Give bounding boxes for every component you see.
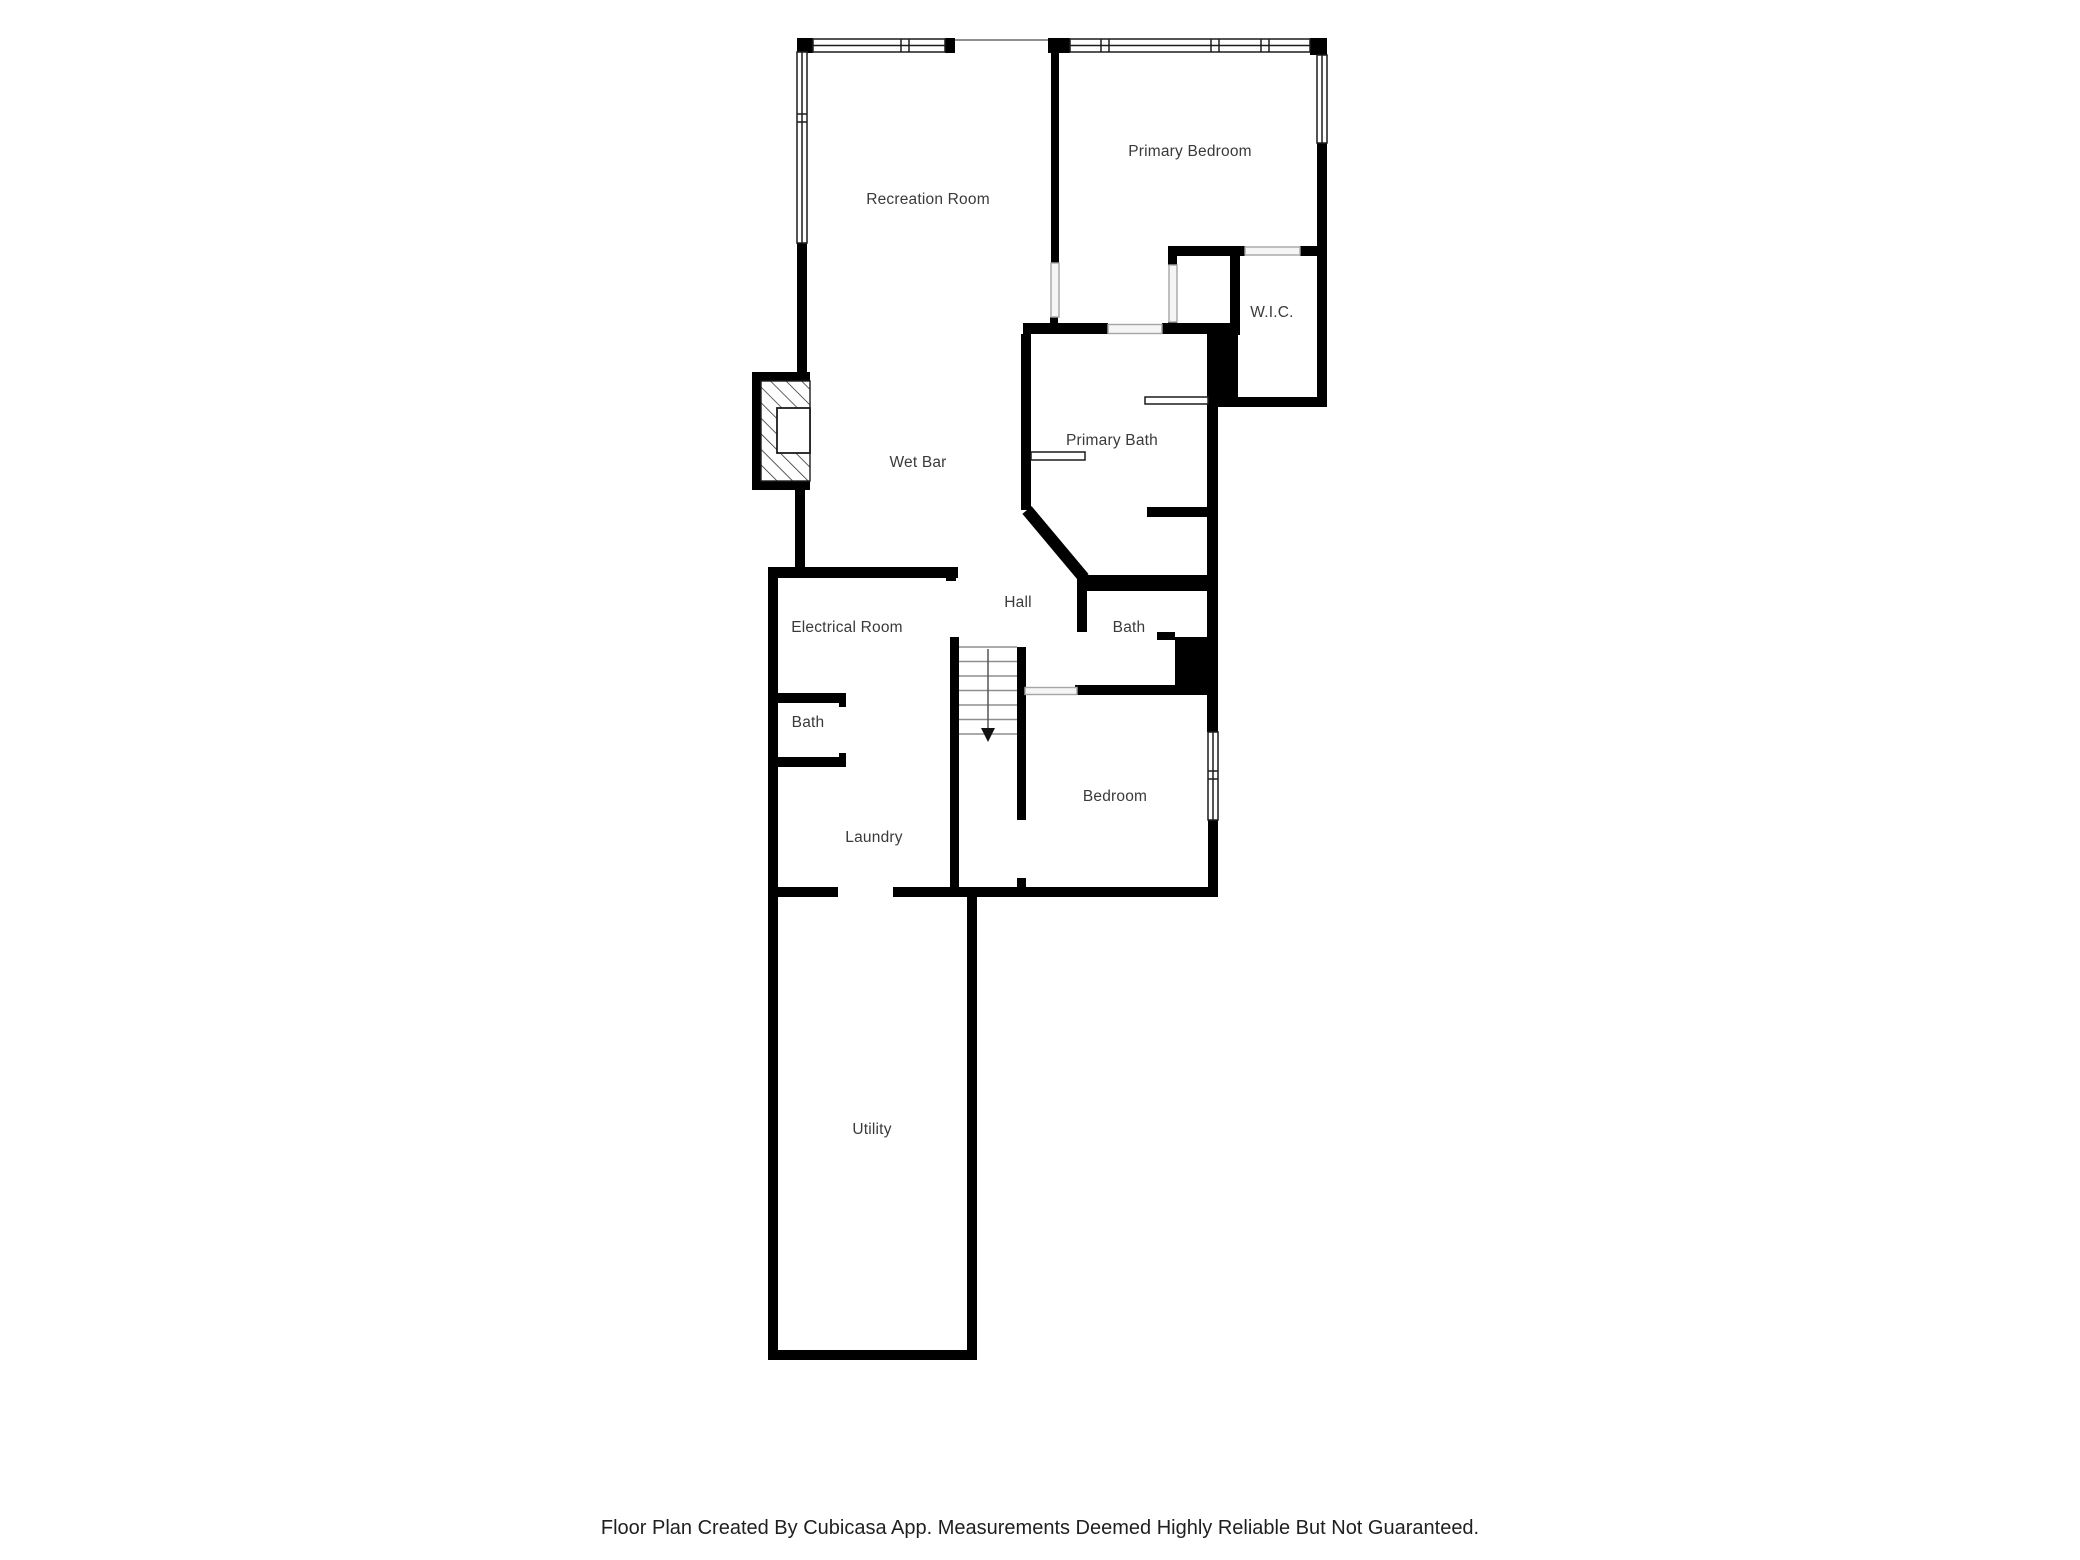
wall bbox=[967, 897, 977, 1350]
walls bbox=[768, 38, 1327, 1360]
floor-plan-drawing bbox=[0, 0, 2080, 1560]
room-label-utility: Utility bbox=[852, 1121, 891, 1139]
room-label-wet-bar: Wet Bar bbox=[889, 454, 946, 472]
wall bbox=[1017, 647, 1026, 820]
room-label-bedroom: Bedroom bbox=[1083, 788, 1147, 806]
room-label-laundry: Laundry bbox=[845, 829, 902, 847]
fireplace-icon bbox=[752, 372, 810, 490]
wall bbox=[1077, 581, 1087, 632]
wall bbox=[795, 490, 805, 568]
wall bbox=[1085, 581, 1207, 591]
wall bbox=[1208, 820, 1218, 897]
wall-diagonal bbox=[1027, 510, 1084, 578]
wall bbox=[1023, 323, 1108, 334]
wall bbox=[1238, 397, 1327, 407]
wall bbox=[945, 38, 955, 53]
wall bbox=[1317, 143, 1327, 407]
wall bbox=[839, 753, 846, 767]
wall bbox=[768, 1350, 977, 1360]
window-icon bbox=[1208, 732, 1218, 820]
wall bbox=[950, 637, 959, 897]
room-label-bath-left: Bath bbox=[792, 714, 825, 732]
room-label-bath-right: Bath bbox=[1113, 619, 1146, 637]
wall bbox=[1017, 878, 1026, 897]
stairs-icon bbox=[959, 647, 1017, 742]
floor-plan: Recreation Room Primary Bedroom W.I.C. P… bbox=[0, 0, 2080, 1560]
wall bbox=[1207, 328, 1238, 407]
wall bbox=[768, 577, 778, 897]
wall bbox=[1051, 52, 1059, 263]
room-label-recreation-room: Recreation Room bbox=[866, 191, 990, 209]
wall bbox=[839, 693, 846, 707]
vanity-counter bbox=[1145, 397, 1208, 404]
wall bbox=[1168, 256, 1177, 265]
wall bbox=[946, 567, 956, 581]
wall bbox=[1207, 407, 1218, 732]
room-label-hall: Hall bbox=[1004, 594, 1032, 612]
wall bbox=[768, 887, 838, 897]
wall bbox=[1300, 246, 1317, 256]
wall bbox=[893, 887, 1218, 897]
wall bbox=[797, 243, 807, 373]
wall bbox=[768, 567, 958, 578]
window-icon bbox=[1317, 55, 1327, 143]
wall bbox=[1021, 334, 1031, 510]
wall bbox=[1310, 38, 1327, 55]
vanity-counter bbox=[1031, 452, 1085, 460]
footer-disclaimer: Floor Plan Created By Cubicasa App. Meas… bbox=[601, 1517, 1479, 1540]
wall bbox=[1157, 632, 1175, 640]
wall bbox=[768, 693, 846, 703]
wall bbox=[1230, 246, 1240, 335]
firebox bbox=[777, 408, 810, 453]
counters bbox=[1031, 397, 1208, 460]
room-label-primary-bedroom: Primary Bedroom bbox=[1128, 143, 1252, 161]
room-label-electrical-room: Electrical Room bbox=[791, 619, 903, 637]
room-label-primary-bath: Primary Bath bbox=[1066, 432, 1158, 450]
wall bbox=[1147, 507, 1208, 517]
window-icon bbox=[1070, 39, 1310, 52]
window-icon bbox=[797, 52, 807, 243]
stairs-down-arrow bbox=[981, 728, 995, 742]
wall bbox=[1048, 38, 1070, 53]
window-icon bbox=[813, 39, 945, 52]
room-label-wic: W.I.C. bbox=[1250, 304, 1293, 322]
wall bbox=[1168, 322, 1177, 330]
wall bbox=[768, 757, 846, 767]
plumbing-chase bbox=[1175, 637, 1208, 688]
wall bbox=[797, 38, 813, 53]
wall bbox=[768, 897, 778, 1360]
